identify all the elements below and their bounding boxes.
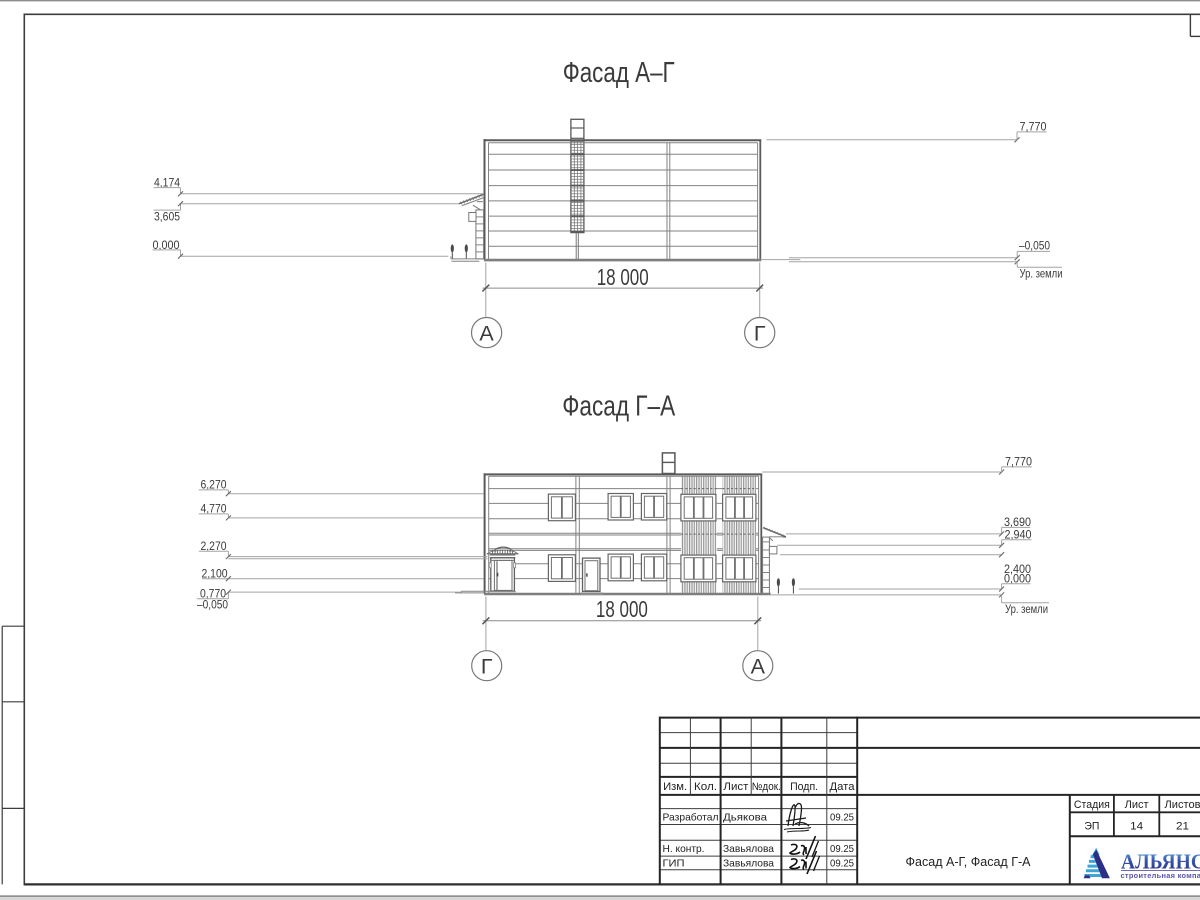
svg-text:Дата: Дата xyxy=(830,781,855,793)
svg-text:Дьякова: Дьякова xyxy=(723,811,767,823)
svg-text:18 000: 18 000 xyxy=(596,596,648,622)
svg-text:Ур. земли: Ур. земли xyxy=(1005,603,1048,616)
svg-text:Г: Г xyxy=(481,654,493,678)
svg-text:ЭП: ЭП xyxy=(1084,821,1099,833)
svg-text:Завьялова: Завьялова xyxy=(723,843,774,855)
svg-text:Лист: Лист xyxy=(1125,799,1149,811)
svg-text:А: А xyxy=(479,321,494,345)
svg-text:09.25: 09.25 xyxy=(830,811,854,823)
svg-text:Листов: Листов xyxy=(1165,799,1200,811)
svg-text:А: А xyxy=(751,654,766,678)
svg-text:Г: Г xyxy=(754,321,766,345)
svg-text:21: 21 xyxy=(1176,821,1189,833)
svg-text:6,270: 6,270 xyxy=(201,477,227,491)
svg-text:№док.: №док. xyxy=(752,781,781,793)
svg-text:3,605: 3,605 xyxy=(154,210,180,224)
svg-text:АЛЬЯНС: АЛЬЯНС xyxy=(1121,849,1200,873)
svg-text:18 000: 18 000 xyxy=(597,264,649,290)
svg-text:09.25: 09.25 xyxy=(830,858,854,870)
svg-text:Подп.: Подп. xyxy=(790,781,818,793)
svg-text:строительная компания: строительная компания xyxy=(1121,871,1200,880)
svg-text:Завьялова: Завьялова xyxy=(723,858,774,870)
svg-text:4,770: 4,770 xyxy=(201,501,227,515)
svg-text:–0,050: –0,050 xyxy=(197,597,228,611)
svg-text:Фасад А–Г: Фасад А–Г xyxy=(563,57,675,89)
svg-text:Кол.: Кол. xyxy=(694,781,717,793)
svg-text:Разработал: Разработал xyxy=(663,811,719,823)
svg-text:Фасад А-Г, Фасад Г-А: Фасад А-Г, Фасад Г-А xyxy=(906,854,1031,869)
svg-text:09.25: 09.25 xyxy=(830,843,854,855)
svg-text:Лист: Лист xyxy=(723,781,748,793)
svg-text:Фасад Г–А: Фасад Г–А xyxy=(562,391,676,423)
svg-text:ГИП: ГИП xyxy=(663,858,685,870)
svg-text:Изм.: Изм. xyxy=(663,781,687,793)
svg-text:Ур. земли: Ур. земли xyxy=(1020,268,1063,281)
svg-text:–0,050: –0,050 xyxy=(1019,239,1050,253)
svg-text:7,770: 7,770 xyxy=(1020,120,1047,134)
svg-text:Н. контр.: Н. контр. xyxy=(663,843,705,855)
svg-text:Стадия: Стадия xyxy=(1074,799,1110,811)
svg-text:7,770: 7,770 xyxy=(1005,455,1032,469)
svg-text:14: 14 xyxy=(1130,821,1143,833)
